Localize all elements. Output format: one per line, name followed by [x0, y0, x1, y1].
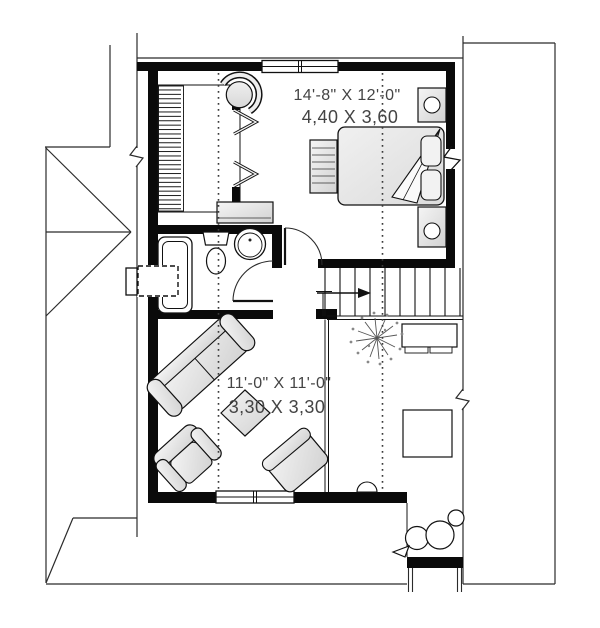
nightstand-icon: [418, 207, 446, 247]
bedroom-door-swing-icon: [285, 228, 322, 265]
staircase: [325, 268, 460, 316]
bedroom-dimensions-metric-label: 4,40 X 3,60: [302, 107, 398, 127]
pillow-icon: [421, 170, 441, 200]
living-room-dimensions-imperial-label: 11'-0" X 11'-0": [227, 375, 332, 392]
floor-plan-page: 14'-8" X 12'-0" 4,40 X 3,60 11'-0" X 11'…: [0, 0, 600, 628]
corner-chair-icon: [216, 67, 267, 118]
wall-register-icon: [357, 482, 377, 492]
bathroom-door-swing-icon: [233, 261, 273, 301]
accent-chair-icon: [260, 426, 332, 496]
lamp-icon: [424, 223, 440, 239]
bifold-door-icon: [234, 110, 256, 186]
toilet-icon: [203, 232, 229, 274]
living-room-dimensions-metric-label: 3,30 X 3,30: [229, 397, 325, 417]
hall-dresser-icon: [217, 202, 273, 223]
nightstand-icon: [418, 88, 446, 122]
desk-icon: [402, 324, 457, 353]
shrub-icon: [393, 510, 464, 557]
bedroom-window-icon: [262, 61, 338, 73]
sink-icon: [235, 229, 266, 260]
floor-plan-drawing: 14'-8" X 12'-0" 4,40 X 3,60 11'-0" X 11'…: [0, 0, 600, 628]
chimney-icon: [126, 265, 179, 297]
living-room-window-icon: [216, 491, 294, 503]
bedroom-dimensions-imperial-label: 14'-8" X 12'-0": [293, 87, 400, 104]
bed-icon: [338, 127, 444, 205]
pillow-icon: [421, 136, 441, 166]
lamp-icon: [424, 97, 440, 113]
side-table-icon: [403, 410, 452, 457]
bed-dresser-icon: [310, 140, 337, 193]
closet-shelves-hatch: [159, 86, 184, 211]
armchair-icon: [148, 420, 223, 494]
